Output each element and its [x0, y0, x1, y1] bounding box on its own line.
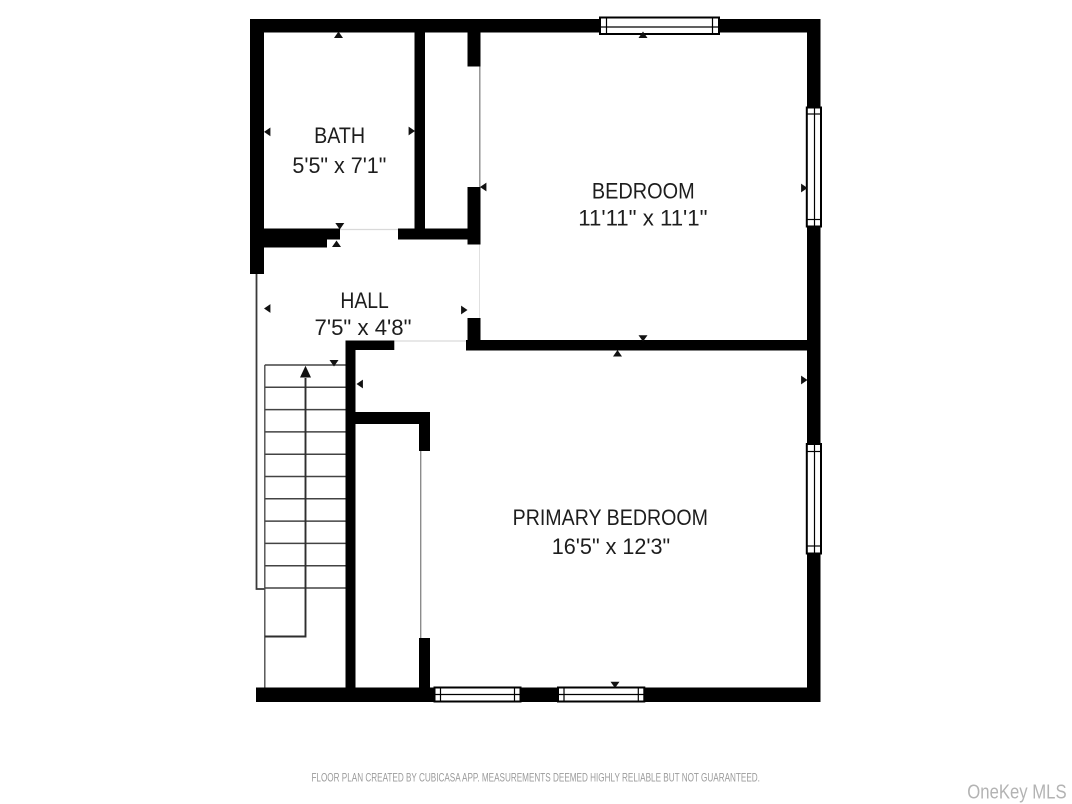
svg-text:FLOOR PLAN CREATED BY CUBICASA: FLOOR PLAN CREATED BY CUBICASA APP. MEAS… [311, 771, 760, 785]
svg-text:7'5" x 4'8": 7'5" x 4'8" [315, 315, 412, 340]
svg-text:11'11" x 11'1": 11'11" x 11'1" [578, 206, 707, 231]
svg-text:5'5" x 7'1": 5'5" x 7'1" [292, 153, 386, 178]
svg-text:HALL: HALL [340, 288, 389, 313]
svg-text:BATH: BATH [314, 123, 365, 148]
svg-text:PRIMARY BEDROOM: PRIMARY BEDROOM [513, 505, 708, 530]
svg-text:16'5" x 12'3": 16'5" x 12'3" [552, 534, 670, 559]
svg-text:BEDROOM: BEDROOM [592, 178, 695, 203]
svg-text:OneKey MLS: OneKey MLS [967, 781, 1066, 804]
